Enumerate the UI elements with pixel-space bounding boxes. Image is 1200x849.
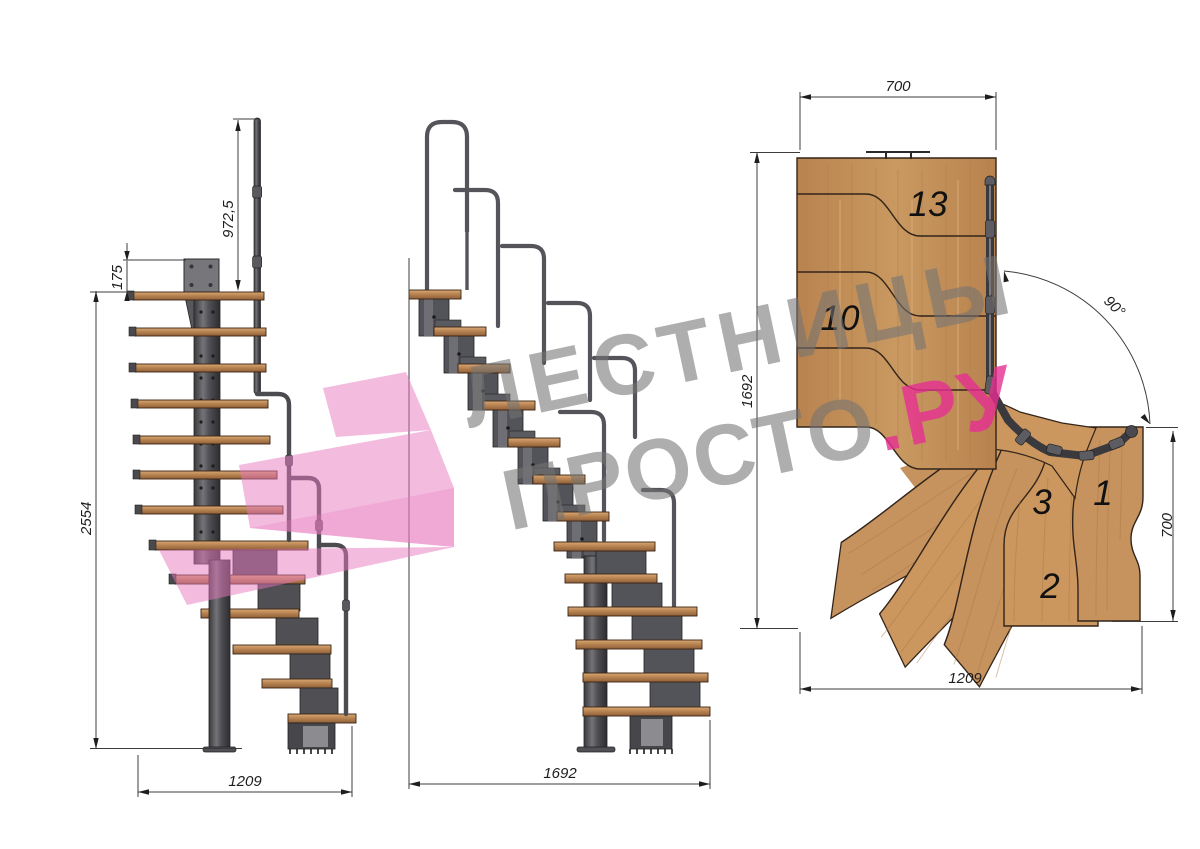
svg-text:1: 1 [1093, 474, 1112, 513]
svg-text:3: 3 [1032, 483, 1052, 522]
svg-text:1209: 1209 [228, 773, 262, 790]
svg-text:2554: 2554 [78, 502, 95, 536]
svg-text:1209: 1209 [948, 670, 982, 687]
svg-text:2: 2 [1039, 567, 1059, 606]
svg-text:972,5: 972,5 [220, 200, 237, 238]
svg-text:175: 175 [109, 264, 126, 290]
svg-text:700: 700 [1159, 512, 1176, 538]
svg-text:13: 13 [909, 185, 948, 224]
svg-text:700: 700 [885, 78, 911, 95]
svg-text:1692: 1692 [543, 765, 577, 782]
